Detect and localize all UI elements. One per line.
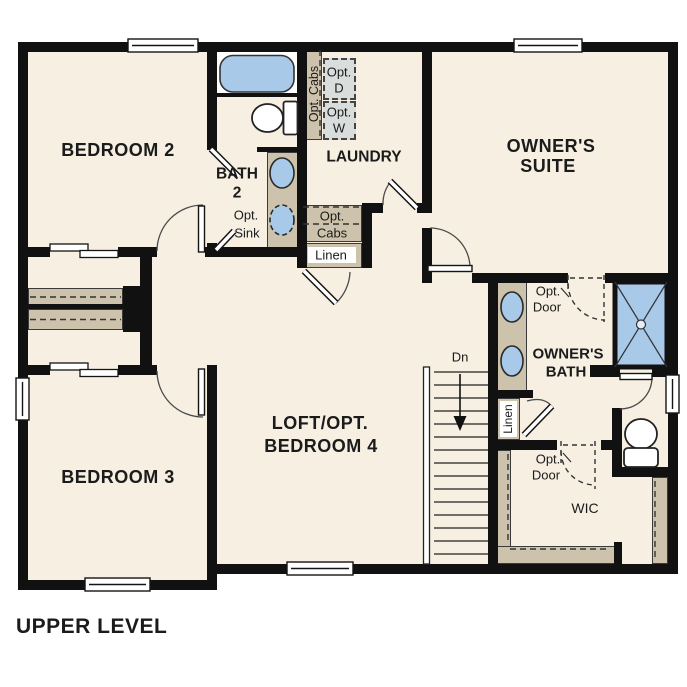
tub-surround <box>217 52 297 93</box>
wall-segment <box>205 247 307 257</box>
room-label-bath2-1: BATH <box>216 166 258 182</box>
wall-segment <box>362 203 383 213</box>
wall-segment <box>118 365 157 375</box>
wall-segment <box>18 42 678 52</box>
room-label-bedroom2: BEDROOM 2 <box>61 141 175 159</box>
room-label-bath2-2: 2 <box>233 185 242 201</box>
opt-door-wic-label-2: Door <box>532 469 560 482</box>
wall-segment <box>207 564 678 574</box>
bath2-vanity <box>267 152 298 248</box>
wall-segment <box>472 273 568 283</box>
room-label-wic: WIC <box>571 501 598 515</box>
wall-segment <box>118 247 157 257</box>
wall-segment <box>123 286 143 332</box>
wall-segment <box>18 247 50 257</box>
room-label-laundry: LAUNDRY <box>326 149 401 165</box>
wall-segment <box>422 228 432 283</box>
opt-washer-label-1: Opt. <box>327 106 352 119</box>
wall-segment <box>297 42 307 268</box>
opt-cabs-box-label-2: Cabs <box>317 227 347 240</box>
wic-shelf-right <box>652 477 668 564</box>
wall-segment <box>28 304 140 309</box>
room-label-owners-bath-1: OWNER'S <box>532 347 603 362</box>
wall-segment <box>612 467 668 477</box>
closet-shelf-bedroom3 <box>28 309 123 330</box>
wic-shelf-bottom <box>497 546 622 564</box>
room-label-owners-suite-1: OWNER'S <box>507 137 596 155</box>
wall-segment <box>605 273 678 283</box>
wall-segment <box>652 365 668 377</box>
room-label-bedroom3: BEDROOM 3 <box>61 468 175 486</box>
opt-dryer-label-1: Opt. <box>327 66 352 79</box>
wall-segment <box>257 147 298 152</box>
opt-door-wic-label-1: Opt. <box>536 453 561 466</box>
wall-segment <box>207 42 217 150</box>
wall-segment <box>590 365 620 377</box>
opt-dryer-label-2: D <box>334 82 343 95</box>
opt-cabs-box-label-1: Opt. <box>320 210 345 223</box>
room-label-loft-2: BEDROOM 4 <box>264 437 378 455</box>
room-label-loft-1: LOFT/OPT. <box>272 414 369 432</box>
opt-door-suite-label-2: Door <box>533 301 561 314</box>
wall-segment <box>668 42 678 574</box>
wall-segment <box>207 365 217 590</box>
wall-segment <box>18 580 217 590</box>
room-label-owners-bath-2: BATH <box>546 365 587 380</box>
floor-plan: BEDROOM 2 BEDROOM 3 OWNER'S SUITE LOFT/O… <box>0 0 687 687</box>
linen-hall-label: Linen <box>315 249 347 262</box>
opt-cabs-vertical-label: Opt. Cabs <box>308 66 321 122</box>
wall-segment <box>614 542 622 564</box>
plan-title: UPPER LEVEL <box>16 615 167 639</box>
opt-sink-label-1: Opt. <box>234 209 259 222</box>
wall-segment <box>422 42 432 208</box>
room-label-owners-suite-2: SUITE <box>520 157 576 175</box>
wall-segment <box>217 93 297 97</box>
wall-segment <box>601 440 612 450</box>
owners-bath-vanity <box>497 278 527 392</box>
wic-shelf-left <box>497 450 511 560</box>
wall-segment <box>488 273 498 574</box>
wall-segment <box>18 42 28 590</box>
wall-segment <box>488 390 533 398</box>
linen-owners-label: Linen <box>502 404 514 433</box>
opt-sink-label-2: Sink <box>234 227 259 240</box>
opt-door-suite-label-1: Opt. <box>536 285 561 298</box>
opt-washer-label-2: W <box>333 122 345 135</box>
wall-segment <box>488 440 557 450</box>
stairs-down-label: Dn <box>452 351 469 364</box>
wall-segment <box>18 365 50 375</box>
